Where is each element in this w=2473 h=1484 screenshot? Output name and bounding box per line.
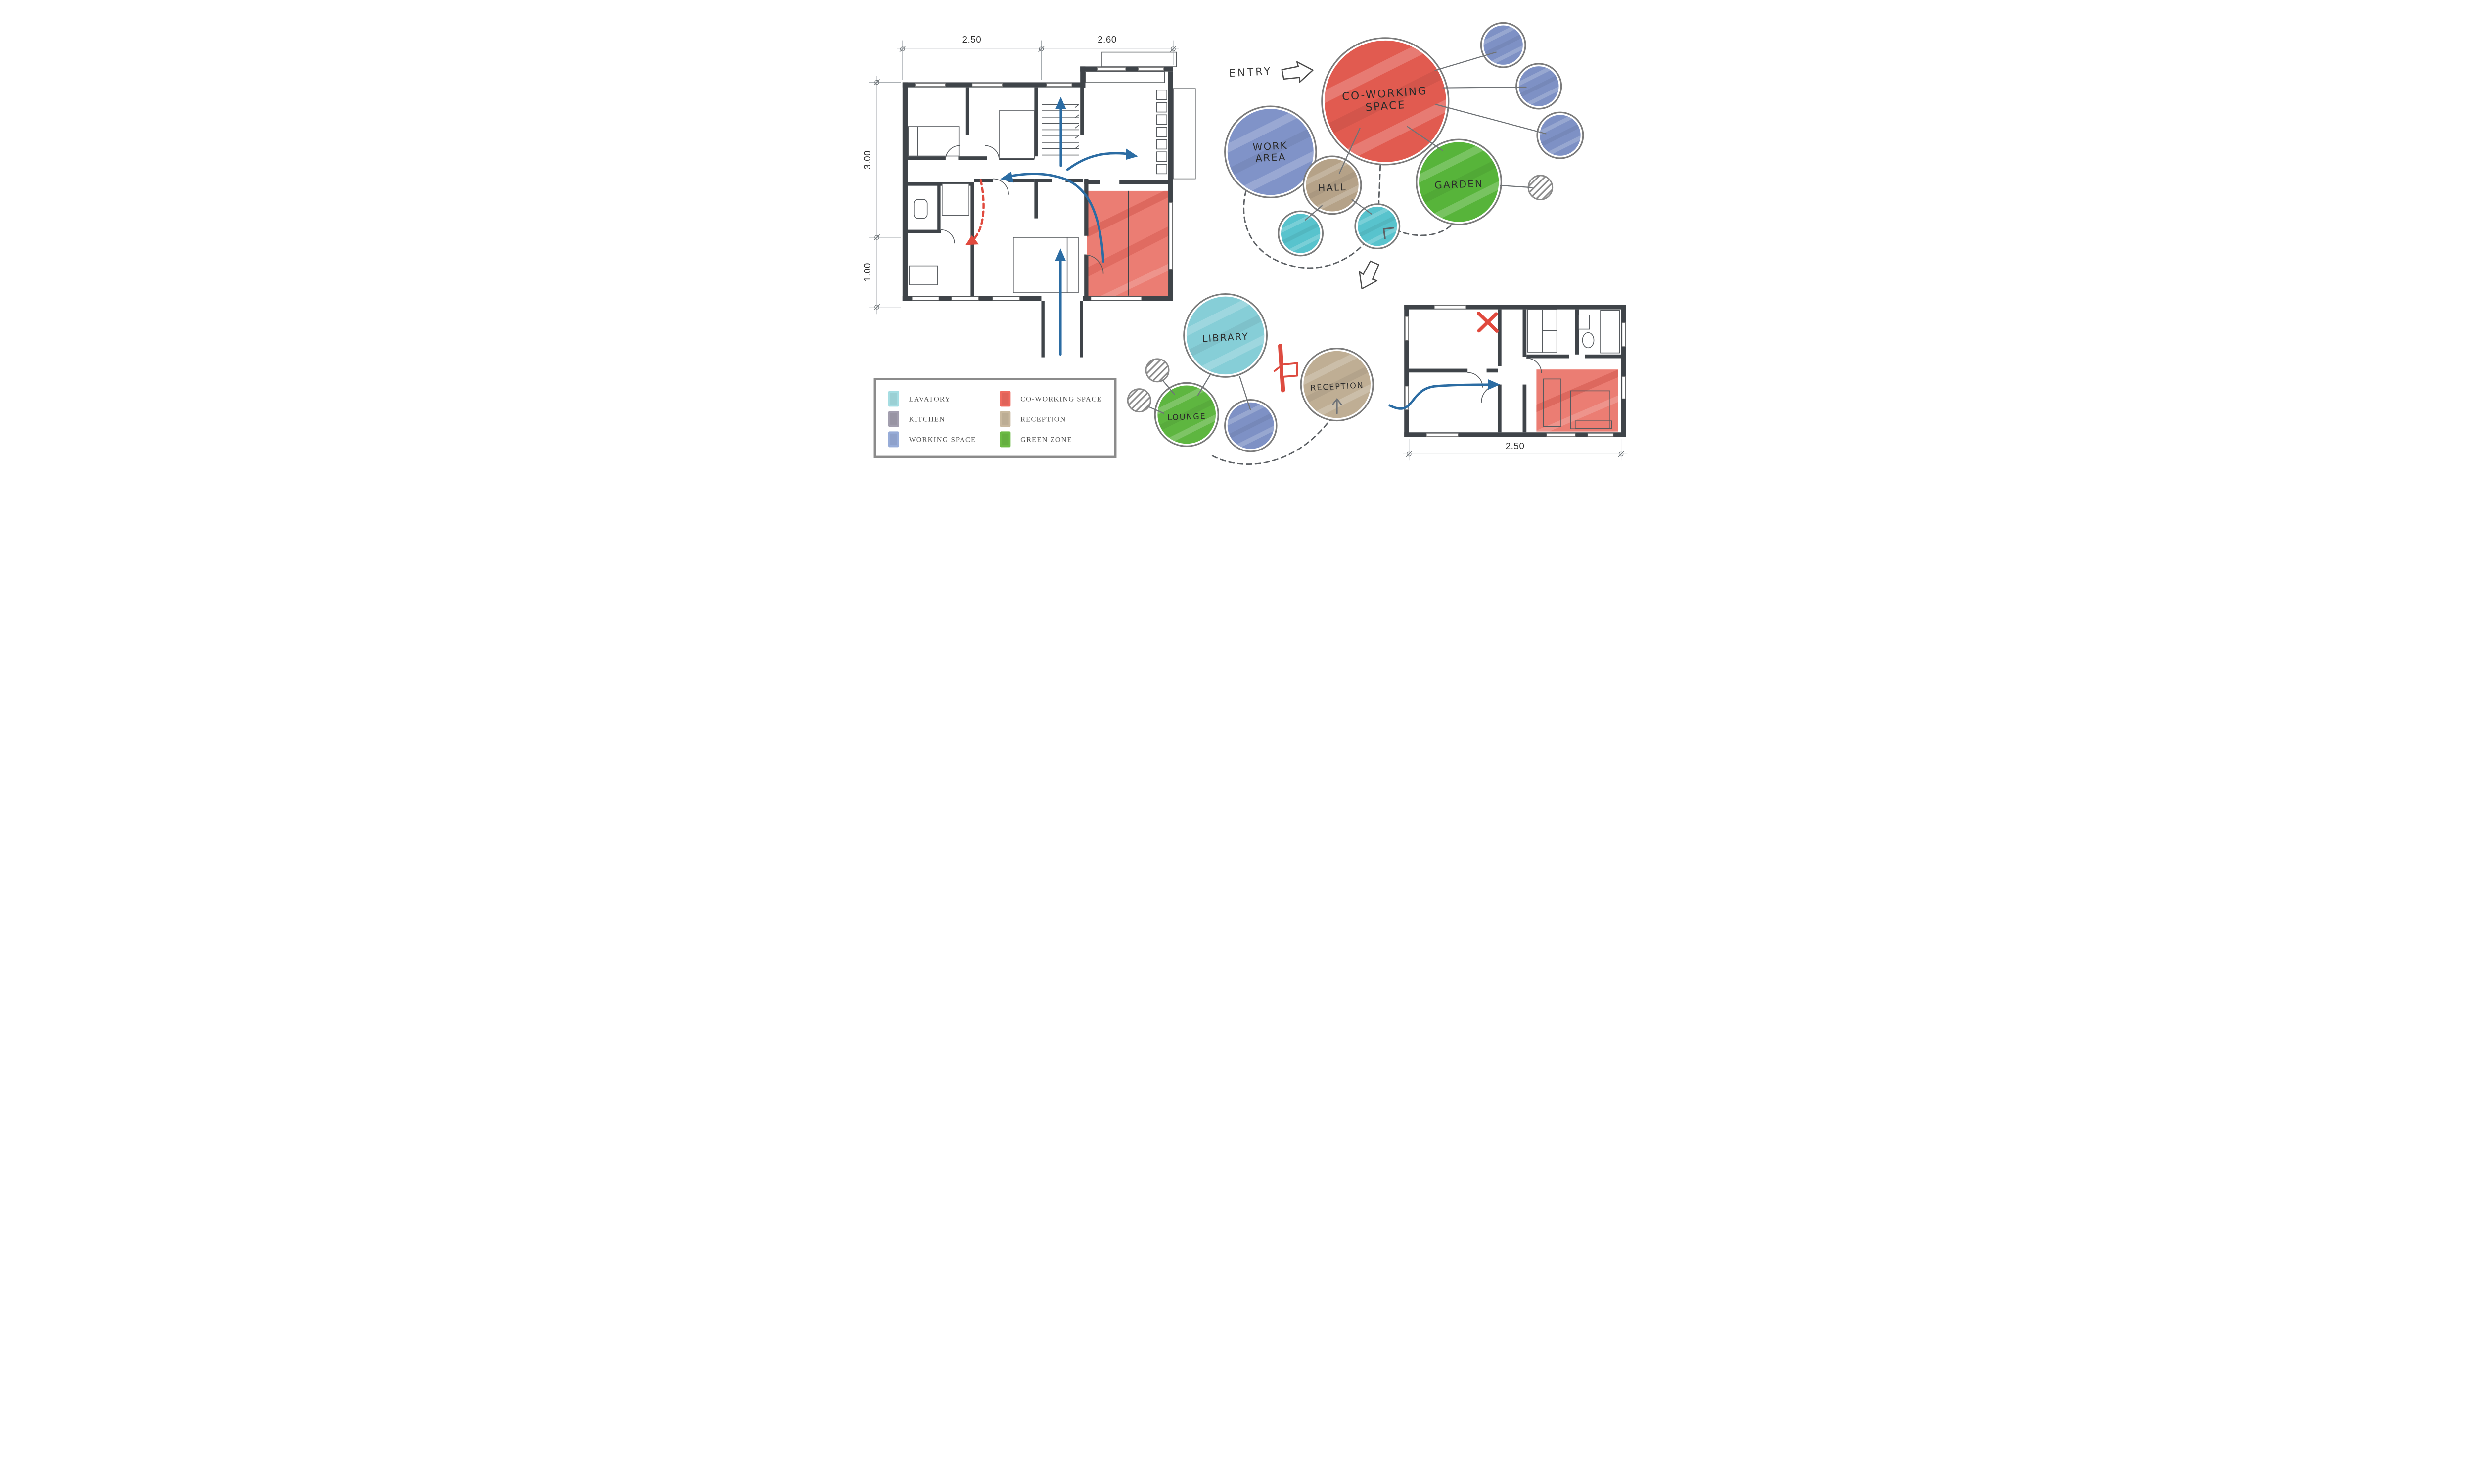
door	[993, 179, 1008, 195]
dim-250-top: 2.50	[962, 34, 982, 45]
bubble-label-work-area: WORKAREA	[1252, 140, 1288, 164]
connector-7	[1501, 185, 1532, 187]
bubble-lavatory-2	[1355, 203, 1400, 250]
closet	[1542, 310, 1557, 331]
window	[912, 297, 939, 300]
shelving	[1157, 90, 1167, 174]
window	[1139, 67, 1164, 70]
wall	[1080, 301, 1083, 358]
floor-plan-right: 2.50	[1390, 305, 1629, 460]
connector-6	[1436, 104, 1546, 134]
hatch-lounge-2	[1128, 389, 1150, 412]
bed	[908, 127, 959, 156]
toilet	[1583, 333, 1594, 348]
legend-label: RECEPTION	[1020, 415, 1066, 423]
toilet	[914, 199, 927, 218]
bubble-lavatory-1	[1279, 210, 1323, 257]
dim-100-left: 1.00	[862, 263, 872, 282]
bubble-co-working-space: CO-WORKINGSPACE	[1322, 35, 1449, 168]
coworking-zone-left	[1078, 187, 1181, 309]
bubble-label-hall: HALL	[1318, 181, 1347, 194]
wall	[1080, 66, 1085, 88]
down-arrow-icon	[1353, 259, 1383, 293]
canopy	[1102, 52, 1176, 67]
concept-board: 2.50 2.60 3.00 1.00	[841, 0, 1632, 475]
legend-label: KITCHEN	[909, 415, 945, 423]
dim-250-bottom: 2.50	[1506, 441, 1525, 451]
bubble-library: LIBRARY	[1184, 292, 1267, 379]
window	[993, 297, 1019, 300]
legend: LAVATORYKITCHENWORKING SPACECO-WORKING S…	[875, 379, 1115, 456]
dim-300-left: 3.00	[862, 150, 872, 170]
bubble-lounge: LOUNGE	[1155, 381, 1218, 448]
bubble-working-space-small	[1225, 399, 1277, 453]
window	[1169, 203, 1172, 269]
blocked-flag-icon	[1272, 346, 1302, 392]
closet	[1528, 310, 1542, 352]
window	[1426, 433, 1458, 436]
window	[1547, 433, 1575, 436]
window	[1588, 433, 1613, 436]
sink	[909, 266, 938, 285]
window	[1434, 306, 1466, 309]
hatch-lounge-1	[1146, 359, 1169, 382]
bubble-hall: HALL	[1303, 155, 1361, 215]
counter	[1085, 72, 1164, 83]
connector-5	[1443, 87, 1526, 88]
legend-label: WORKING SPACE	[909, 436, 976, 444]
entry-label: ENTRY	[1229, 65, 1273, 80]
window	[1097, 67, 1126, 70]
dimensions-right-plan: 2.50	[1403, 439, 1627, 460]
wall	[1041, 301, 1044, 358]
window	[915, 83, 945, 86]
balcony	[1173, 89, 1195, 179]
bubble-garden: GARDEN	[1417, 137, 1502, 226]
shower	[942, 184, 969, 216]
entry-arrow-icon	[1281, 60, 1314, 85]
legend-label: GREEN ZONE	[1020, 436, 1072, 444]
door	[985, 145, 999, 160]
closet	[1542, 331, 1557, 352]
connector-4	[1435, 52, 1496, 71]
coworking-zone-right	[1529, 369, 1629, 437]
bubble-work-area: WORKAREA	[1225, 104, 1316, 200]
red-x-icon	[1479, 314, 1497, 331]
door	[941, 230, 955, 244]
bubble-label-garden: GARDEN	[1434, 178, 1484, 191]
wall	[903, 82, 908, 301]
window	[972, 83, 1003, 86]
window	[1405, 316, 1408, 340]
sink	[1578, 315, 1589, 329]
bubble-working-space-sat-1	[1481, 22, 1525, 68]
window	[1047, 83, 1072, 86]
window	[1091, 297, 1142, 300]
legend-label: CO-WORKING SPACE	[1020, 396, 1102, 404]
bathtub	[1601, 310, 1619, 353]
bed	[1013, 237, 1078, 293]
floor-plan-left: 2.50 2.60 3.00 1.00	[862, 34, 1195, 358]
legend-label: LAVATORY	[909, 396, 951, 404]
dim-260-top: 2.60	[1098, 34, 1117, 45]
bed	[999, 111, 1034, 158]
window	[1622, 377, 1625, 399]
bubble-working-space-sat-3	[1537, 111, 1583, 159]
bubble-diagram: CO-WORKINGSPACEWORKAREAHALLGARDENLIBRARY…	[1128, 22, 1583, 452]
window	[1622, 323, 1625, 347]
bubble-label-lounge: LOUNGE	[1167, 411, 1206, 422]
bubble-working-space-sat-2	[1516, 63, 1561, 110]
window	[952, 297, 978, 300]
